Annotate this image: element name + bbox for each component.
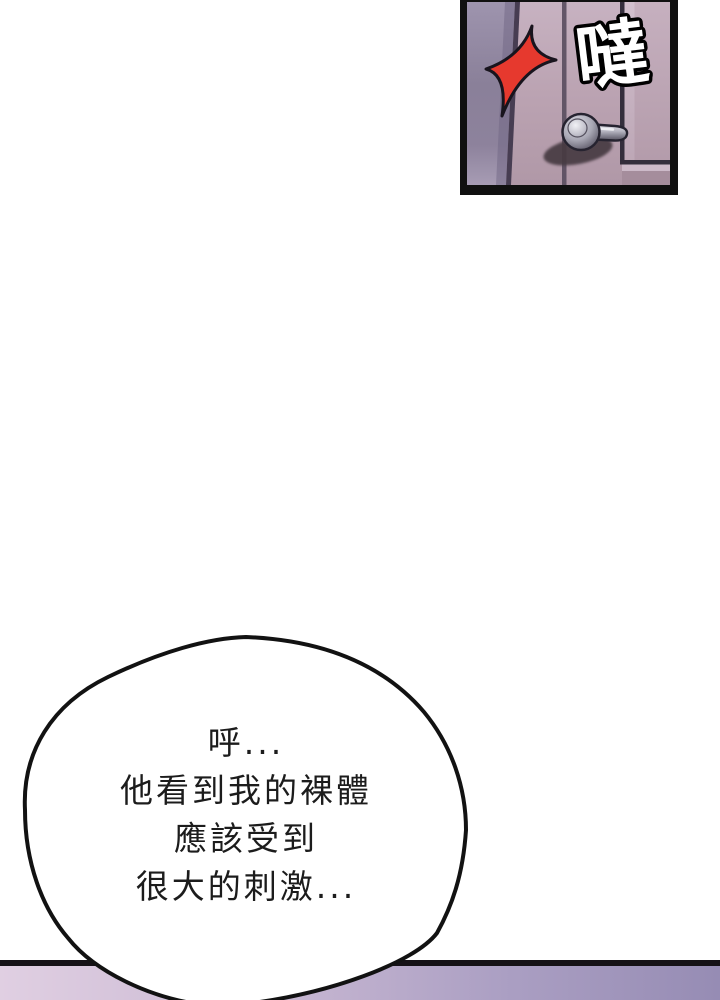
- door-inset-bevel-horizontal: [620, 160, 670, 165]
- sfx-text: 噠: [571, 9, 653, 101]
- door-scene: 噠: [467, 2, 670, 185]
- speech-bubble-text: 呼... 他看到我的裸體 應該受到 很大的刺激...: [28, 719, 464, 911]
- comic-page: 噠 呼... 他看到我的裸體 應該受到 很大的刺激...: [0, 0, 720, 1000]
- door-panel: 噠: [460, 0, 678, 195]
- speech-line: 呼...: [28, 719, 464, 767]
- speech-line: 應該受到: [28, 815, 464, 863]
- door-handle-dome: [568, 119, 587, 137]
- speech-line: 很大的刺激...: [28, 863, 464, 911]
- door-inset-lower-band: [622, 171, 670, 185]
- door-inset-bevel-horizontal-highlight: [622, 165, 670, 172]
- speech-line: 他看到我的裸體: [28, 767, 464, 815]
